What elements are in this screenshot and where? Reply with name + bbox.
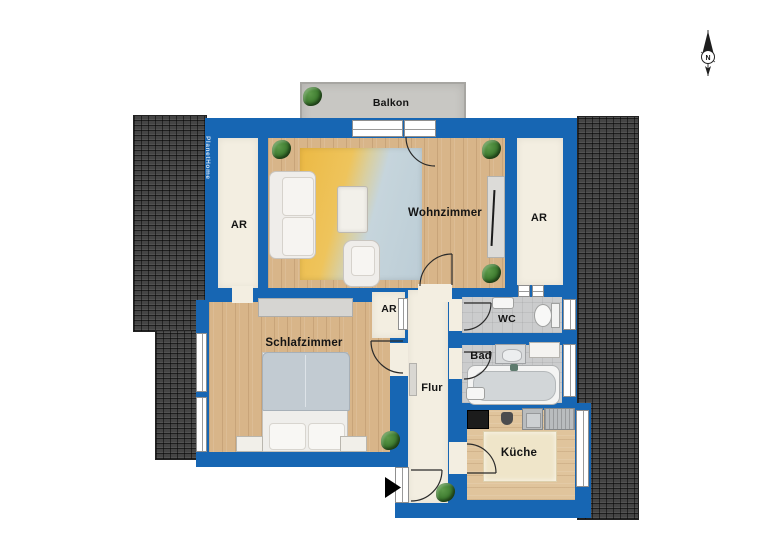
balcony-door-panel <box>404 120 436 137</box>
gap-ar-right-1 <box>518 285 530 297</box>
window-kueche <box>576 410 589 487</box>
nightstand-left <box>236 436 263 452</box>
room-flur <box>408 290 448 503</box>
bad-cabinet <box>529 342 560 358</box>
kitchen-sink-2 <box>544 408 575 430</box>
kitchen-faucet <box>501 412 513 425</box>
toilet-tank <box>551 303 560 328</box>
gap-ar-right-2 <box>532 285 544 297</box>
sofa <box>269 171 316 259</box>
armchair <box>343 240 380 287</box>
bathtub-basin <box>473 371 556 401</box>
opening-ar-left <box>232 286 253 303</box>
label-schlafzimmer: Schlafzimmer <box>265 337 342 349</box>
compass-north-label: N <box>705 55 710 62</box>
label-balkon: Balkon <box>373 97 409 109</box>
wardrobe <box>258 298 353 317</box>
bad-sink <box>495 344 526 364</box>
room-ar-left <box>218 138 258 288</box>
bed <box>262 352 348 452</box>
label-bad: Bad <box>470 350 491 362</box>
opening-wc <box>449 299 462 331</box>
compass-icon: N <box>701 30 715 76</box>
hall-radiator <box>409 363 417 396</box>
entrance-door-frame <box>395 467 409 503</box>
opening-wohnzimmer-flur <box>418 284 452 302</box>
window-schlafzimmer-1 <box>196 333 207 392</box>
wc-sink <box>492 297 514 309</box>
window-bad <box>563 344 576 397</box>
label-wohnzimmer: Wohnzimmer <box>408 207 482 219</box>
bathtub-faucet <box>510 364 518 371</box>
label-wc: WC <box>498 313 516 325</box>
brand-watermark: PlanetHome <box>204 136 211 206</box>
opening-schlafzimmer <box>390 343 408 376</box>
label-ar-mid: AR <box>381 303 397 315</box>
armchair-cushion <box>351 246 375 276</box>
label-kueche: Küche <box>501 447 537 459</box>
floor-plan: N Balkon Wohnzimmer AR AR AR Schlafzimme… <box>0 0 768 560</box>
window-wc <box>563 299 576 330</box>
kitchen-sink-basin <box>526 413 541 428</box>
opening-kueche <box>449 442 467 474</box>
toilet-bowl <box>534 304 552 327</box>
label-ar-left: AR <box>231 219 247 231</box>
bad-sink-basin <box>502 349 522 362</box>
roof-area-left-lower <box>155 330 197 460</box>
window-wohnzimmer-top <box>352 120 403 137</box>
window-schlafzimmer-2 <box>196 397 207 452</box>
opening-bad <box>449 348 462 379</box>
bed-duvet <box>262 352 350 411</box>
nightstand-right <box>340 436 367 452</box>
bed-pillow <box>269 423 306 450</box>
sofa-cushion <box>282 217 314 256</box>
kitchen-sink-1 <box>522 408 543 430</box>
cooktop <box>467 410 489 429</box>
door-ar-mid <box>398 298 408 330</box>
coffee-table <box>337 186 368 233</box>
sofa-cushion <box>282 177 314 216</box>
label-ar-right: AR <box>531 212 547 224</box>
bad-small-sink <box>466 387 485 400</box>
label-flur: Flur <box>421 382 443 394</box>
bed-duvet-fold <box>305 355 306 407</box>
